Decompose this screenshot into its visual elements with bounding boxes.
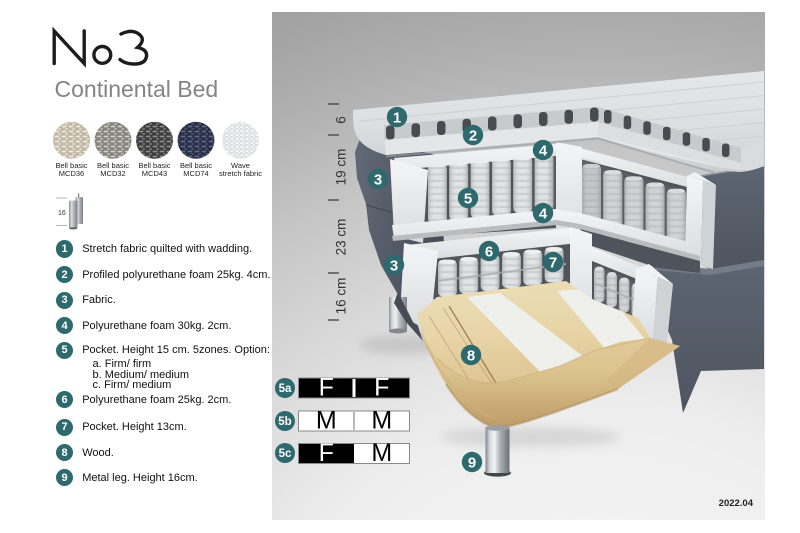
svg-text:6: 6 xyxy=(485,243,493,260)
svg-text:16 cm: 16 cm xyxy=(334,278,349,315)
svg-text:8: 8 xyxy=(467,347,475,364)
svg-text:9: 9 xyxy=(468,454,476,471)
svg-text:4: 4 xyxy=(539,205,548,222)
svg-text:2: 2 xyxy=(469,127,477,144)
svg-text:5c: 5c xyxy=(279,448,292,460)
svg-text:3: 3 xyxy=(374,171,382,188)
svg-text:F: F xyxy=(319,439,334,467)
svg-text:3: 3 xyxy=(390,257,398,274)
svg-text:1: 1 xyxy=(393,109,401,126)
svg-text:2022.04: 2022.04 xyxy=(719,498,754,509)
svg-text:16: 16 xyxy=(58,210,66,217)
svg-text:4: 4 xyxy=(539,142,548,159)
svg-text:7: 7 xyxy=(549,254,557,271)
svg-text:F: F xyxy=(319,374,334,402)
svg-text:M: M xyxy=(316,407,337,435)
svg-text:5: 5 xyxy=(464,190,472,207)
svg-text:6: 6 xyxy=(334,116,349,124)
svg-text:F: F xyxy=(374,374,389,402)
svg-text:19 cm: 19 cm xyxy=(334,149,349,186)
svg-text:5b: 5b xyxy=(278,416,291,428)
svg-text:23 cm: 23 cm xyxy=(334,219,349,256)
svg-text:5a: 5a xyxy=(279,383,292,395)
svg-text:M: M xyxy=(371,439,392,467)
svg-text:M: M xyxy=(371,407,392,435)
